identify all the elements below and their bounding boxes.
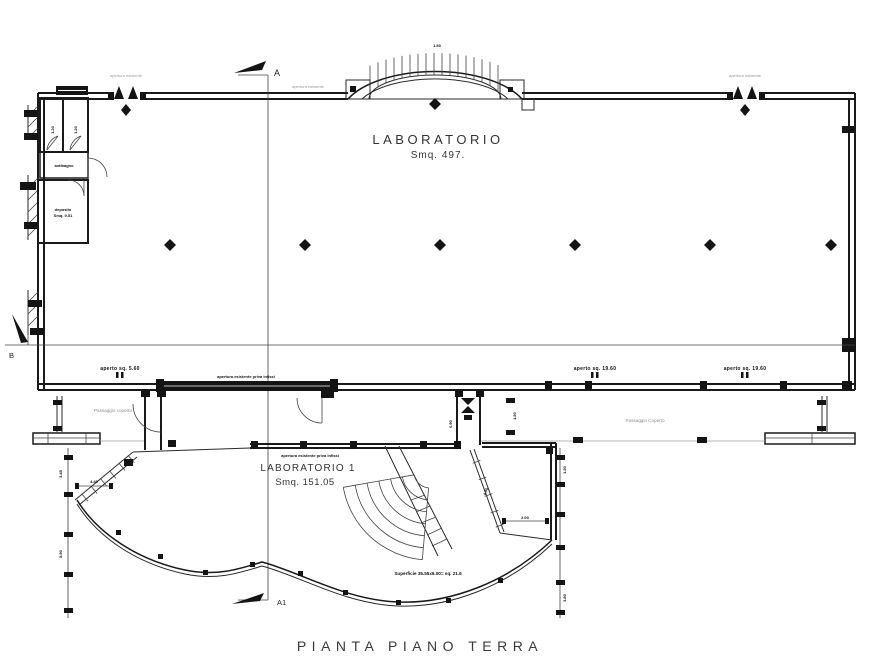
- section-b-label: B: [9, 351, 14, 360]
- stall-a-dim: 1.20: [50, 125, 55, 134]
- curved-facade: [77, 500, 552, 606]
- drawing-title: PIANTA PIANO TERRA: [297, 638, 543, 654]
- svg-text:4.40: 4.40: [90, 479, 99, 484]
- surface-note: Superficie 35.55x6.00= sq. 21.6: [394, 571, 462, 576]
- corridor-window-icon: [461, 398, 475, 413]
- arched-entry-stair: 1.50: [346, 43, 524, 110]
- wing-top-note: apertura esistente priva infissi: [281, 453, 339, 458]
- svg-text:aperto sq. 5.60: aperto sq. 5.60: [100, 366, 140, 372]
- store-area-label: Smq. 9.51: [54, 213, 73, 218]
- svg-text:aperto sq. 19.60: aperto sq. 19.60: [574, 366, 617, 372]
- svg-text:3.45: 3.45: [58, 469, 63, 478]
- passage-left-label: Passaggio coperto: [94, 408, 132, 413]
- corner-dim: 2.00: [521, 515, 530, 520]
- room-labels: LABORATORIO Smq. 497. LABORATORIO 1 Smq.…: [260, 84, 503, 488]
- column-arch: [429, 98, 441, 110]
- band-note: apertura esistente priva infissi: [217, 374, 275, 379]
- arch-dim: 1.50: [433, 43, 442, 48]
- window-left-note: apertura esistente: [110, 73, 143, 78]
- arch-left-note: apertura esistente: [292, 84, 325, 89]
- wall-angled-left: [75, 452, 137, 505]
- section-a-arrow: [234, 61, 266, 73]
- floor-plan-page: apertura esistente apertura esistente 1.…: [0, 0, 893, 670]
- opening-label-right: aperto sq. 19.60: [724, 366, 767, 378]
- stall-b-dim: 1.20: [73, 125, 78, 134]
- svg-text:aperto sq. 19.60: aperto sq. 19.60: [724, 366, 767, 372]
- window-symbol-left: apertura esistente: [108, 73, 146, 116]
- svg-text:5.90: 5.90: [58, 549, 63, 558]
- portico: Passaggio coperto Passaggio Coperto 1.50: [33, 396, 855, 444]
- section-a-line: A A1: [232, 61, 286, 607]
- room-label-laboratorio: LABORATORIO: [372, 132, 503, 147]
- passage-right-label: Passaggio Coperto: [625, 418, 665, 423]
- window-right-note: apertura esistente: [729, 73, 762, 78]
- corner-right: 2.00 4.95: [470, 443, 556, 540]
- section-a-label: A: [274, 68, 280, 78]
- opening-label-left: aperto sq. 5.60: [100, 366, 140, 378]
- section-b-arrow: [12, 314, 28, 343]
- svg-text:3.80: 3.80: [562, 593, 567, 602]
- lobby-label: antibagno: [54, 163, 74, 168]
- section-a1-label: A1: [277, 598, 286, 607]
- service-rooms: 1.20 1.20 antibagno deposito Smq. 9.51: [38, 98, 107, 243]
- door-bottom-wall: [321, 391, 334, 398]
- fan-staircase: [343, 446, 452, 560]
- room-area-laboratorio1: Smq. 151.05: [275, 477, 334, 488]
- corridor-right: 0.90: [448, 391, 484, 445]
- svg-text:1.50: 1.50: [562, 465, 567, 474]
- column-grid: [164, 239, 837, 251]
- section-b-marker: B: [9, 308, 28, 360]
- passage-dim: 1.50: [512, 411, 517, 420]
- section-a1-arrow: [232, 593, 264, 604]
- opening-label-mid: aperto sq. 19.60: [574, 366, 617, 378]
- store-label: deposito: [55, 207, 72, 212]
- dim-chain-right: 1.50 3.80: [556, 448, 567, 618]
- window-symbol-right: apertura esistente: [727, 73, 765, 116]
- room-area-laboratorio: Smq. 497.: [411, 150, 466, 161]
- wing-lab1: 0.90 apertura esistente priva infissi 4.…: [58, 391, 567, 618]
- corridor-dim: 0.90: [448, 419, 453, 428]
- dim-chain-left: 3.45 5.90: [58, 448, 73, 618]
- room-label-laboratorio1: LABORATORIO 1: [260, 463, 355, 474]
- floor-plan-drawing: apertura esistente apertura esistente 1.…: [0, 0, 893, 670]
